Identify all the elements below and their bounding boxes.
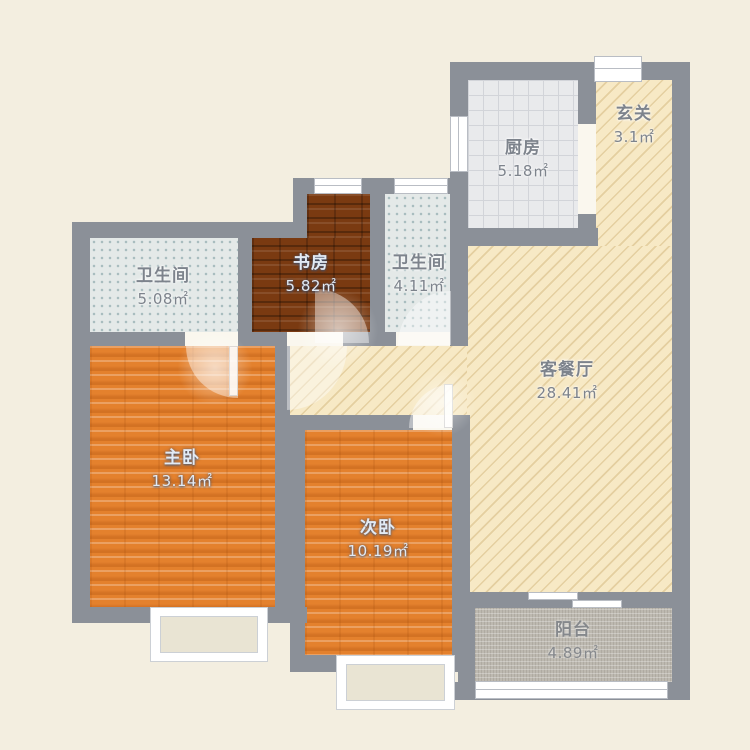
wall-bathL-top <box>72 222 252 238</box>
ensuite-door-opening <box>185 332 238 346</box>
wall-left <box>72 222 90 623</box>
study-window <box>314 178 362 194</box>
floor-plan: 玄关 3.1㎡ 厨房 5.18㎡ 卫生间 5.08㎡ 书房 5.82㎡ 卫生间 … <box>0 0 750 750</box>
living-dining-floor <box>467 246 672 592</box>
wall-bed2-left <box>290 415 305 672</box>
entry-door-threshold <box>594 56 642 82</box>
entrance-label: 玄关 3.1㎡ <box>614 106 655 145</box>
balcony-label: 阳台 4.89㎡ <box>548 622 599 661</box>
study-label: 书房 5.82㎡ <box>286 255 337 294</box>
second-bedroom-label: 次卧 10.19㎡ <box>348 520 409 559</box>
balcony-name: 阳台 <box>548 622 599 639</box>
living-dining-area: 28.41㎡ <box>537 386 598 401</box>
master-bedroom-area: 13.14㎡ <box>152 474 213 489</box>
balcony-window <box>475 681 668 699</box>
study-floor-upper <box>307 194 370 238</box>
balcony-area: 4.89㎡ <box>548 646 599 661</box>
master-bay-window <box>150 607 268 662</box>
study-name: 书房 <box>286 255 337 272</box>
bed2-bay-window <box>336 655 455 710</box>
bathroom-right-area: 4.11㎡ <box>392 279 446 294</box>
second-bedroom-area: 10.19㎡ <box>348 544 409 559</box>
bed2-door-leaf <box>444 384 453 428</box>
bathroom-left-area: 5.08㎡ <box>136 292 190 307</box>
living-dining-label: 客餐厅 28.41㎡ <box>537 362 598 401</box>
kitchen-window <box>450 116 468 172</box>
wall-kitchen-left <box>450 62 468 346</box>
kitchen-pass-opening <box>578 124 596 214</box>
kitchen-name: 厨房 <box>498 140 549 157</box>
kitchen-label: 厨房 5.18㎡ <box>498 140 549 179</box>
master-bedroom-label: 主卧 13.14㎡ <box>152 450 213 489</box>
wall-study-bathR <box>370 194 385 346</box>
bathroom-right-window <box>394 178 448 194</box>
bathroom-left-label: 卫生间 5.08㎡ <box>136 268 190 307</box>
wall-bed2-right <box>452 415 470 672</box>
balcony-sliding-door-right <box>572 600 622 608</box>
kitchen-area: 5.18㎡ <box>498 164 549 179</box>
living-dining-name: 客餐厅 <box>537 362 598 379</box>
bathroom-right-name: 卫生间 <box>392 255 446 272</box>
master-bedroom-name: 主卧 <box>152 450 213 467</box>
entrance-name: 玄关 <box>614 106 655 123</box>
bathroom-right-label: 卫生间 4.11㎡ <box>392 255 446 294</box>
wall-bathL-study <box>238 222 252 346</box>
wall-kitchen-bottom <box>450 228 598 246</box>
second-bedroom-name: 次卧 <box>348 520 409 537</box>
ensuite-door-leaf <box>229 346 238 396</box>
entrance-area: 3.1㎡ <box>614 130 655 145</box>
study-area: 5.82㎡ <box>286 279 337 294</box>
balcony-sliding-door-left <box>528 592 578 600</box>
wall-top <box>450 62 690 80</box>
bathroom-left-name: 卫生间 <box>136 268 190 285</box>
